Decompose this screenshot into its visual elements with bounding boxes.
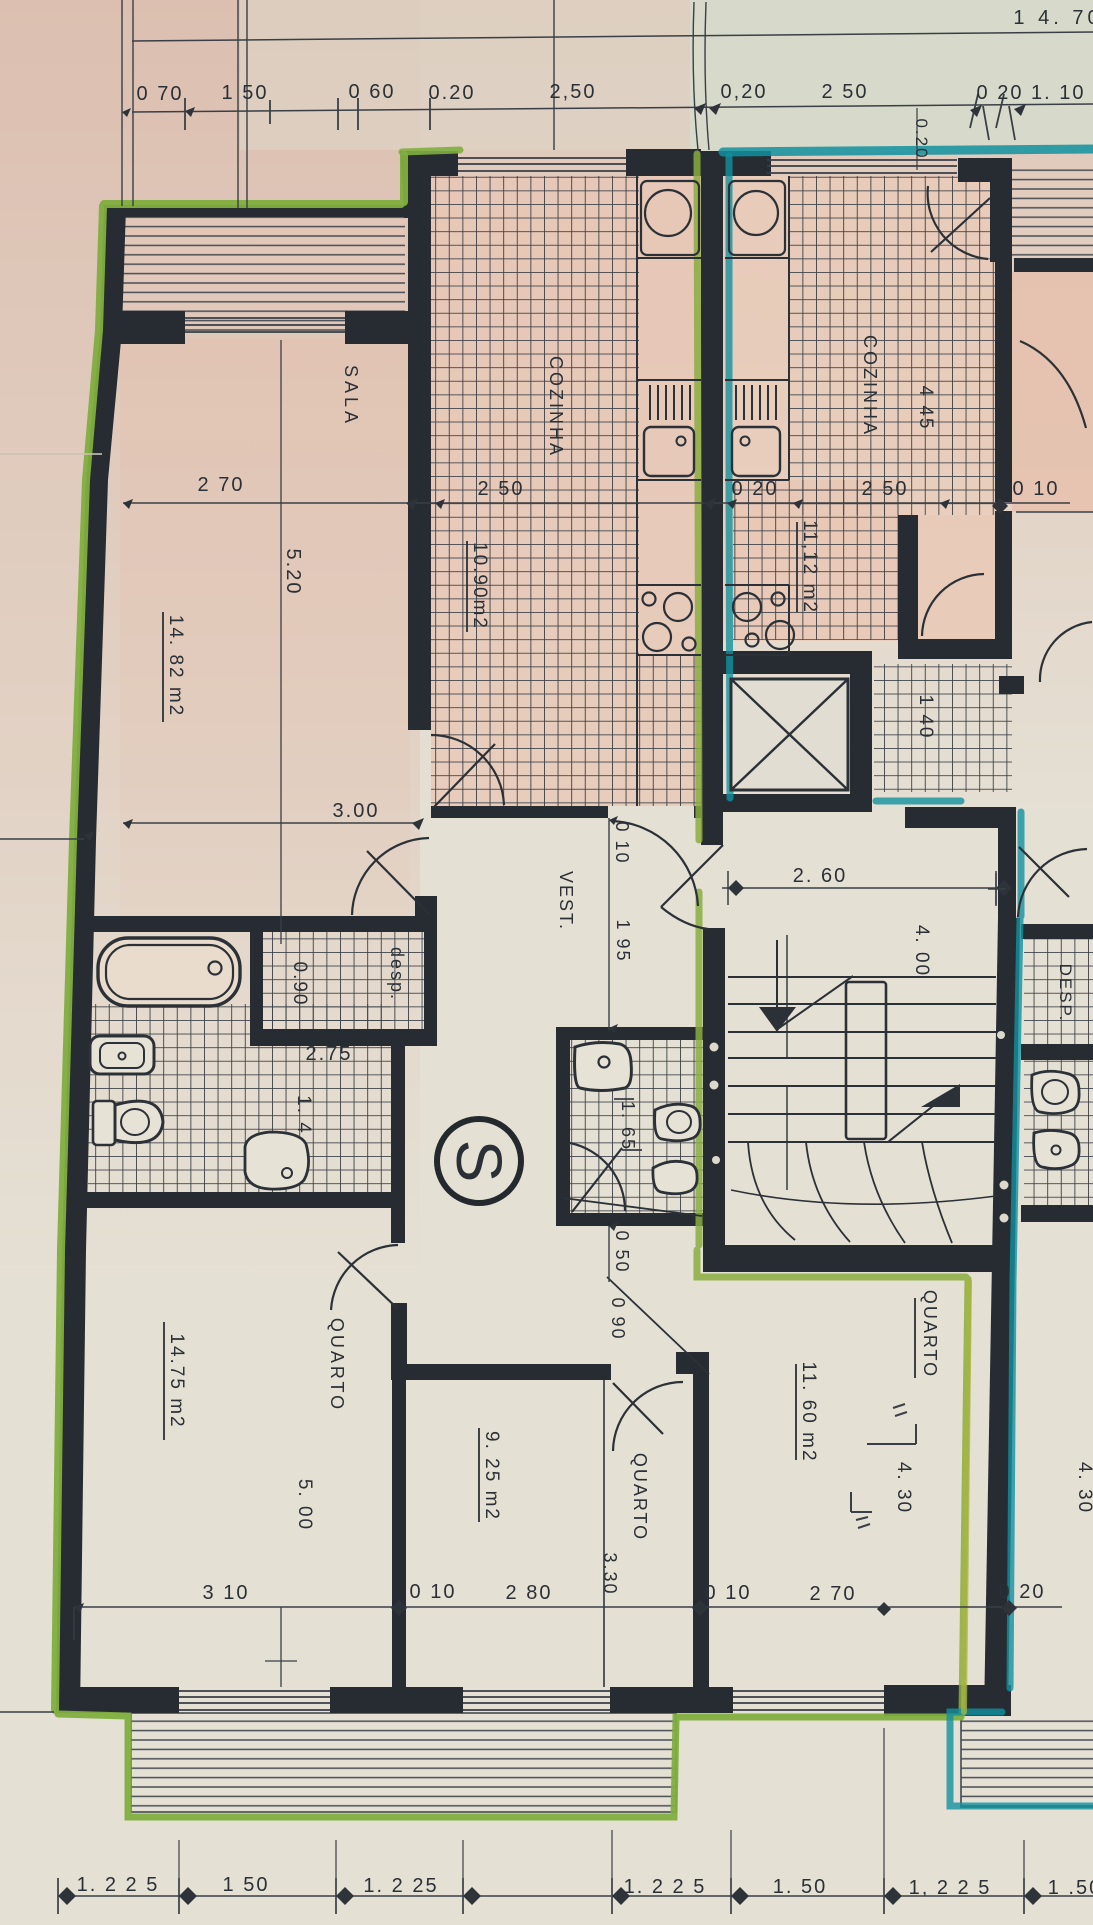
svg-text:2.75: 2.75	[306, 1043, 353, 1065]
svg-text:1 50: 1 50	[222, 82, 269, 104]
svg-text:2 70: 2 70	[198, 474, 245, 496]
svg-text:10.90m2: 10.90m2	[469, 542, 490, 630]
svg-text:2 50: 2 50	[822, 81, 869, 103]
svg-text:0.20: 0.20	[429, 82, 476, 104]
svg-text:1. 2 2 5: 1. 2 2 5	[77, 1874, 160, 1896]
svg-text:0 20: 0 20	[732, 478, 779, 500]
svg-text:0 60: 0 60	[349, 81, 396, 103]
svg-text:5.20: 5.20	[282, 549, 304, 596]
svg-text:3.30: 3.30	[600, 1552, 620, 1595]
svg-text:0 20: 0 20	[999, 1581, 1046, 1603]
svg-text:4. 00: 4. 00	[911, 925, 932, 977]
svg-text:VEST.: VEST.	[556, 871, 576, 931]
svg-text:2,50: 2,50	[550, 81, 597, 103]
svg-text:2 80: 2 80	[506, 1582, 553, 1604]
svg-text:0 10: 0 10	[705, 1582, 752, 1604]
svg-text:0 10: 0 10	[612, 821, 632, 864]
svg-text:COZINHA: COZINHA	[546, 356, 566, 458]
svg-text:0,20: 0,20	[721, 81, 768, 103]
svg-text:1. 4: 1. 4	[293, 1095, 314, 1135]
svg-text:9. 25 m2: 9. 25 m2	[481, 1431, 502, 1521]
svg-text:1 95: 1 95	[613, 919, 633, 962]
svg-text:QUARTO: QUARTO	[920, 1290, 940, 1378]
svg-text:SALA: SALA	[341, 365, 361, 427]
svg-text:0 50: 0 50	[612, 1230, 632, 1273]
svg-text:4. 30: 4. 30	[893, 1462, 914, 1514]
svg-text:14. 82 m2: 14. 82 m2	[165, 615, 186, 718]
svg-text:S: S	[443, 1140, 515, 1183]
svg-text:1 40: 1 40	[915, 695, 936, 740]
svg-text:QUARTO: QUARTO	[327, 1318, 347, 1412]
svg-text:1 .50: 1 .50	[1048, 1877, 1093, 1899]
svg-text:4. 30: 4. 30	[1074, 1462, 1093, 1514]
svg-text:0.20: 0.20	[912, 118, 931, 159]
svg-text:11. 60 m2: 11. 60 m2	[798, 1361, 819, 1462]
svg-text:2. 60: 2. 60	[793, 865, 847, 887]
svg-text:0 20 1. 10: 0 20 1. 10	[977, 82, 1086, 104]
svg-text:3 10: 3 10	[203, 1582, 250, 1604]
svg-text:2 70: 2 70	[810, 1583, 857, 1605]
svg-text:5. 00: 5. 00	[294, 1479, 315, 1531]
svg-text:0 10: 0 10	[1013, 478, 1060, 500]
svg-text:COZINHA: COZINHA	[860, 335, 880, 437]
svg-text:desp.: desp.	[387, 947, 407, 1001]
svg-text:11,12 m2: 11,12 m2	[799, 520, 820, 614]
svg-text:DESP.: DESP.	[1056, 964, 1075, 1023]
svg-text:2 50: 2 50	[862, 478, 909, 500]
svg-text:QUARTO: QUARTO	[630, 1453, 650, 1541]
svg-text:1. 2 2 5: 1. 2 2 5	[624, 1876, 707, 1898]
svg-text:14.75 m2: 14.75 m2	[166, 1333, 187, 1428]
svg-text:0 90: 0 90	[608, 1297, 628, 1340]
svg-text:0 70: 0 70	[137, 83, 184, 105]
svg-text:1 4. 70: 1 4. 70	[1013, 7, 1093, 29]
svg-text:1. 50: 1. 50	[773, 1876, 827, 1898]
svg-text:1. 65: 1. 65	[618, 1101, 638, 1151]
svg-text:3.00: 3.00	[333, 800, 380, 822]
svg-text:4 45: 4 45	[915, 386, 936, 431]
svg-text:1 50: 1 50	[223, 1874, 270, 1896]
svg-text:2 50: 2 50	[478, 478, 525, 500]
svg-text:0.90: 0.90	[289, 962, 310, 1007]
svg-text:0 10: 0 10	[410, 1581, 457, 1603]
svg-text:1. 2 25: 1. 2 25	[363, 1875, 438, 1897]
svg-text:1, 2 2 5: 1, 2 2 5	[909, 1877, 992, 1899]
